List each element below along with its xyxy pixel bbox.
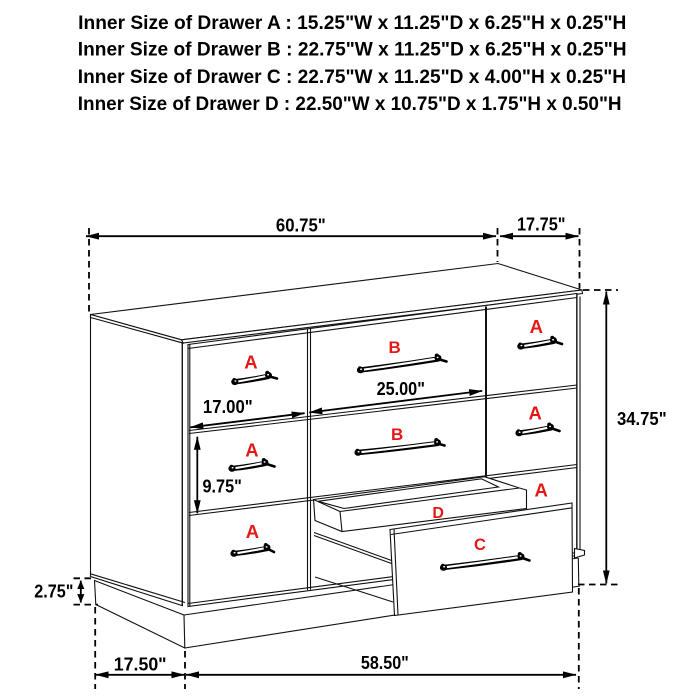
svg-text:34.75": 34.75" [617, 408, 667, 429]
svg-text:A: A [244, 352, 257, 373]
svg-text:Inner Size of Drawer D : 22.5: Inner Size of Drawer D : 22.50"W x 10.75… [78, 94, 622, 115]
svg-text:25.00": 25.00" [377, 378, 425, 399]
svg-text:A: A [529, 403, 542, 424]
svg-text:60.75": 60.75" [276, 214, 326, 235]
svg-text:17.50": 17.50" [114, 653, 167, 674]
svg-text:Inner Size of Drawer B : 22.75: Inner Size of Drawer B : 22.75"W x 11.25… [78, 39, 627, 60]
svg-text:9.75": 9.75" [203, 475, 242, 496]
svg-text:B: B [388, 338, 400, 357]
svg-text:58.50": 58.50" [361, 652, 409, 673]
svg-text:Inner Size of Drawer C : 22.75: Inner Size of Drawer C : 22.75"W x 11.25… [78, 67, 626, 88]
svg-text:B: B [391, 425, 403, 444]
svg-text:2.75": 2.75" [34, 581, 73, 602]
svg-text:D: D [432, 505, 444, 522]
svg-text:A: A [245, 440, 258, 461]
svg-text:A: A [535, 480, 548, 501]
svg-text:A: A [246, 521, 259, 542]
svg-text:A: A [530, 316, 543, 337]
svg-text:17.00": 17.00" [203, 396, 253, 417]
svg-text:17.75": 17.75" [517, 213, 566, 234]
svg-text:C: C [474, 536, 486, 554]
svg-text:Inner Size of Drawer A : 15.25: Inner Size of Drawer A : 15.25"W x 11.25… [78, 13, 626, 34]
